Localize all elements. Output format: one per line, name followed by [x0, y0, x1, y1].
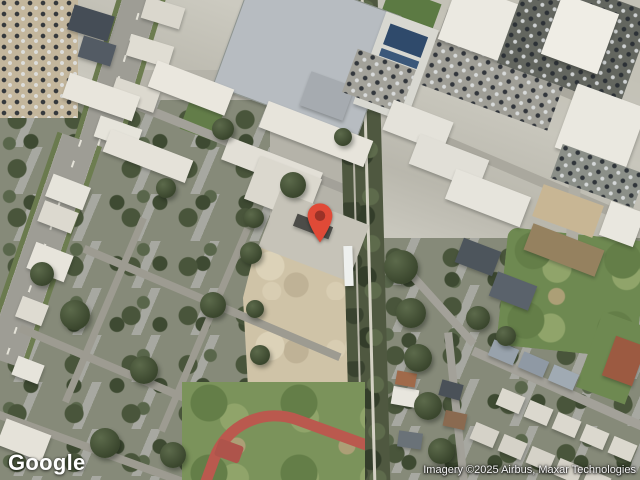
google-logo[interactable]: Google	[8, 450, 86, 476]
sports-field	[182, 382, 365, 480]
tree	[244, 208, 264, 228]
tree	[496, 326, 516, 346]
tree	[396, 298, 426, 328]
tree	[160, 442, 186, 468]
tree	[212, 118, 234, 140]
tree	[414, 392, 442, 420]
tree	[250, 345, 270, 365]
tree	[280, 172, 306, 198]
tree	[240, 242, 262, 264]
tree	[156, 178, 176, 198]
truck-lot	[0, 0, 78, 118]
tree	[130, 356, 158, 384]
location-pin-icon[interactable]	[306, 202, 334, 244]
tree	[428, 438, 454, 464]
tree	[30, 262, 54, 286]
tree	[90, 428, 120, 458]
pin-body[interactable]	[308, 203, 333, 242]
tree	[246, 300, 264, 318]
running-track	[182, 391, 365, 480]
imagery-attribution: Imagery ©2025 Airbus, Maxar Technologies	[423, 464, 636, 476]
bus-vehicle	[343, 246, 353, 286]
tree	[334, 128, 352, 146]
map-viewport[interactable]: Google Imagery ©2025 Airbus, Maxar Techn…	[0, 0, 640, 480]
tree	[200, 292, 226, 318]
tree	[466, 306, 490, 330]
house-roof	[397, 430, 423, 449]
tree	[404, 344, 432, 372]
tree	[384, 250, 418, 284]
tree	[60, 300, 90, 330]
pin-dot	[315, 211, 326, 222]
